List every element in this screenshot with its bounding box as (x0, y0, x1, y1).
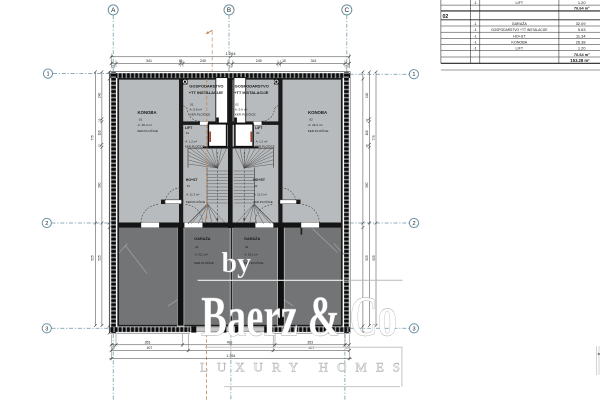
svg-text:407: 407 (147, 346, 153, 350)
svg-text:525: 525 (90, 255, 94, 261)
svg-text:1.264: 1.264 (226, 354, 235, 358)
svg-text:HO+ST: HO+ST (513, 34, 526, 38)
svg-text:+TT INSTALACIJE: +TT INSTALACIJE (234, 90, 269, 95)
svg-text:341: 341 (146, 59, 152, 63)
svg-text:2: 2 (412, 221, 415, 227)
svg-text:525: 525 (365, 255, 369, 261)
svg-text:-1: -1 (473, 47, 476, 51)
svg-text:525: 525 (97, 255, 101, 261)
svg-text:02: 02 (235, 102, 239, 106)
svg-text:-1: -1 (473, 22, 476, 26)
svg-text:LIFT: LIFT (516, 47, 524, 51)
svg-text:76.64 m²: 76.64 m² (574, 5, 590, 10)
svg-text:3: 3 (412, 326, 415, 332)
svg-text:01: 01 (190, 102, 194, 106)
svg-text:KER.PLOČICE: KER.PLOČICE (137, 128, 158, 133)
svg-text:01: 01 (195, 245, 199, 249)
svg-text:1.20: 1.20 (578, 46, 586, 51)
svg-text:A: 11.3 m²: A: 11.3 m² (186, 193, 199, 197)
svg-text:15: 15 (365, 118, 369, 122)
svg-text:01: 01 (186, 131, 190, 135)
svg-text:15: 15 (97, 144, 101, 148)
svg-text:15: 15 (179, 59, 183, 63)
svg-text:-1: -1 (473, 1, 476, 5)
svg-text:116: 116 (97, 130, 101, 135)
svg-text:1: 1 (46, 72, 49, 78)
svg-text:240: 240 (97, 93, 101, 99)
svg-text:02: 02 (256, 131, 260, 135)
svg-text:15: 15 (365, 144, 369, 148)
svg-text:C: C (344, 7, 349, 14)
svg-text:B: B (227, 7, 231, 14)
svg-text:KONOBA: KONOBA (138, 110, 157, 115)
svg-text:GARAŽA: GARAŽA (194, 236, 210, 241)
svg-text:-1: -1 (473, 41, 476, 45)
svg-text:A: 1.2 m²: A: 1.2 m² (185, 139, 197, 143)
svg-text:25: 25 (228, 65, 232, 69)
svg-text:15: 15 (282, 59, 286, 63)
svg-text:KONOBA: KONOBA (308, 110, 327, 115)
svg-text:25: 25 (112, 65, 116, 69)
svg-text:A: 11.3 m²: A: 11.3 m² (254, 193, 267, 197)
svg-text:153.28 m²: 153.28 m² (570, 58, 590, 63)
svg-text:GOSPODARSTVO: GOSPODARSTVO (189, 83, 223, 88)
svg-text:390: 390 (365, 182, 369, 188)
svg-text:341: 341 (311, 59, 317, 63)
svg-text:-1: -1 (473, 34, 476, 38)
svg-text:LIFT: LIFT (255, 126, 263, 130)
svg-text:KER.PLOČICE: KER.PLOČICE (186, 199, 206, 204)
svg-text:GOSPODARSTVO: GOSPODARSTVO (235, 83, 269, 88)
svg-text:A: A (111, 7, 116, 14)
svg-text:01: 01 (139, 117, 143, 121)
svg-text:A: 1.2 m²: A: 1.2 m² (256, 139, 268, 143)
svg-text:KER.PLOČICE: KER.PLOČICE (194, 260, 214, 265)
svg-text:Baerz & Co: Baerz & Co (201, 286, 397, 349)
svg-text:11.34: 11.34 (576, 33, 586, 38)
svg-text:LIFT: LIFT (516, 1, 524, 5)
svg-text:02: 02 (254, 184, 258, 188)
svg-text:HO+ST: HO+ST (253, 178, 266, 182)
svg-text:KONOBA: KONOBA (511, 41, 527, 45)
svg-text:GARAŽA: GARAŽA (512, 21, 528, 26)
svg-text:525: 525 (372, 255, 376, 261)
svg-text:76.64 m²: 76.64 m² (574, 52, 590, 57)
svg-text:116: 116 (365, 130, 369, 135)
svg-text:15: 15 (97, 118, 101, 122)
svg-text:KER.PLOČICE: KER.PLOČICE (190, 111, 211, 116)
svg-text:32.09: 32.09 (576, 21, 586, 26)
svg-text:3: 3 (45, 326, 48, 332)
svg-text:HO+ST: HO+ST (186, 178, 199, 182)
svg-text:A: 26.4 m²: A: 26.4 m² (308, 123, 322, 127)
svg-text:by: by (222, 248, 252, 279)
svg-text:240: 240 (200, 59, 206, 63)
svg-text:353: 353 (145, 340, 151, 344)
svg-text:02: 02 (443, 14, 449, 20)
svg-text:240: 240 (365, 93, 369, 99)
svg-text:KER.PLOČICE: KER.PLOČICE (235, 111, 256, 116)
svg-text:-1: -1 (473, 28, 476, 32)
svg-text:LIFT: LIFT (185, 126, 193, 130)
svg-text:1.20: 1.20 (578, 0, 586, 5)
svg-text:775: 775 (372, 135, 376, 141)
svg-text:01: 01 (187, 184, 191, 188)
svg-text:GOSPODARSTVO +TT INSTALACIJE: GOSPODARSTVO +TT INSTALACIJE (491, 28, 548, 32)
svg-text:390: 390 (97, 182, 101, 188)
svg-text:240: 240 (256, 59, 262, 63)
svg-text:KER.PLOČICE: KER.PLOČICE (255, 143, 275, 148)
svg-text:26.38: 26.38 (576, 40, 586, 45)
svg-text:KER.PLOČICE: KER.PLOČICE (253, 199, 273, 204)
svg-text:1: 1 (412, 72, 415, 78)
svg-text:KER.PLOČICE: KER.PLOČICE (185, 143, 205, 148)
svg-text:1.264: 1.264 (226, 51, 237, 56)
svg-text:25: 25 (345, 65, 349, 69)
svg-text:775: 775 (90, 135, 94, 141)
svg-text:A: 5.6 m²: A: 5.6 m² (190, 107, 203, 111)
svg-text:GARAŽA: GARAŽA (244, 236, 260, 241)
svg-text:02: 02 (309, 117, 313, 121)
svg-text:A: 5.6 m²: A: 5.6 m² (235, 107, 248, 111)
svg-text:KER.PLOČICE: KER.PLOČICE (308, 128, 329, 133)
svg-text:25: 25 (112, 345, 116, 349)
svg-text:A: 26.4 m²: A: 26.4 m² (138, 123, 152, 127)
svg-text:+TT INSTALACIJE: +TT INSTALACIJE (189, 90, 224, 95)
svg-text:2: 2 (45, 221, 48, 227)
svg-text:5.63: 5.63 (578, 27, 586, 32)
svg-text:A: 32.1 m²: A: 32.1 m² (195, 252, 208, 256)
